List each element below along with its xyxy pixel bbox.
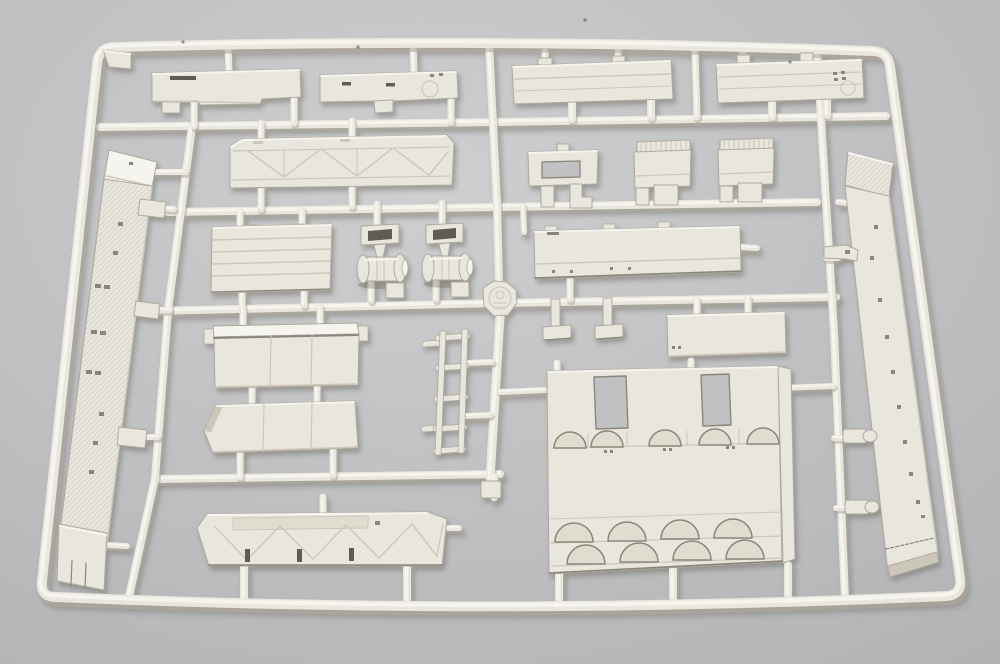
- gate: [499, 389, 546, 394]
- flat-panel-small: [667, 312, 786, 357]
- gate: [251, 385, 253, 406]
- gate: [293, 98, 295, 125]
- gate: [739, 246, 758, 250]
- gate: [696, 299, 698, 316]
- model-sprue-photo: [0, 0, 1000, 664]
- long-panel: [534, 222, 741, 279]
- gate: [406, 564, 408, 602]
- gate: [571, 101, 573, 121]
- hook-mid: [843, 429, 877, 443]
- tray-upper: [204, 323, 368, 388]
- gate: [558, 571, 560, 602]
- gate: [465, 414, 491, 418]
- gate: [447, 527, 460, 530]
- runner-foot-block: [481, 481, 501, 498]
- wheel-arch-panel: [547, 366, 795, 574]
- dust-speck: [356, 45, 359, 48]
- gate: [152, 171, 187, 174]
- gate: [569, 278, 571, 301]
- gate: [672, 568, 674, 600]
- gate: [332, 448, 334, 477]
- hook-low: [845, 500, 879, 514]
- gate: [826, 97, 828, 117]
- gate: [104, 544, 128, 548]
- truss-panel-top: [230, 135, 454, 188]
- photo-stage: [0, 0, 1000, 664]
- gate: [650, 99, 652, 119]
- runner-v-top-gap: [694, 51, 698, 119]
- truss-panel-bottom: [197, 512, 447, 566]
- dust-speck: [583, 18, 586, 21]
- step-cleat-1: [138, 199, 166, 218]
- gate: [193, 100, 195, 128]
- gate: [239, 450, 241, 479]
- dust-speck: [788, 60, 791, 63]
- gate: [787, 564, 789, 597]
- corrugated-box: [211, 224, 332, 293]
- gate: [465, 361, 493, 365]
- step-cleat-2: [134, 301, 160, 319]
- gate: [145, 436, 159, 439]
- gate: [771, 99, 773, 119]
- gate: [450, 98, 452, 124]
- gate: [522, 205, 525, 234]
- hook-upper: [824, 245, 858, 261]
- step-cleat-3: [117, 427, 147, 448]
- gate: [316, 384, 318, 404]
- dust-speck: [181, 40, 184, 43]
- tray-lower: [204, 401, 358, 453]
